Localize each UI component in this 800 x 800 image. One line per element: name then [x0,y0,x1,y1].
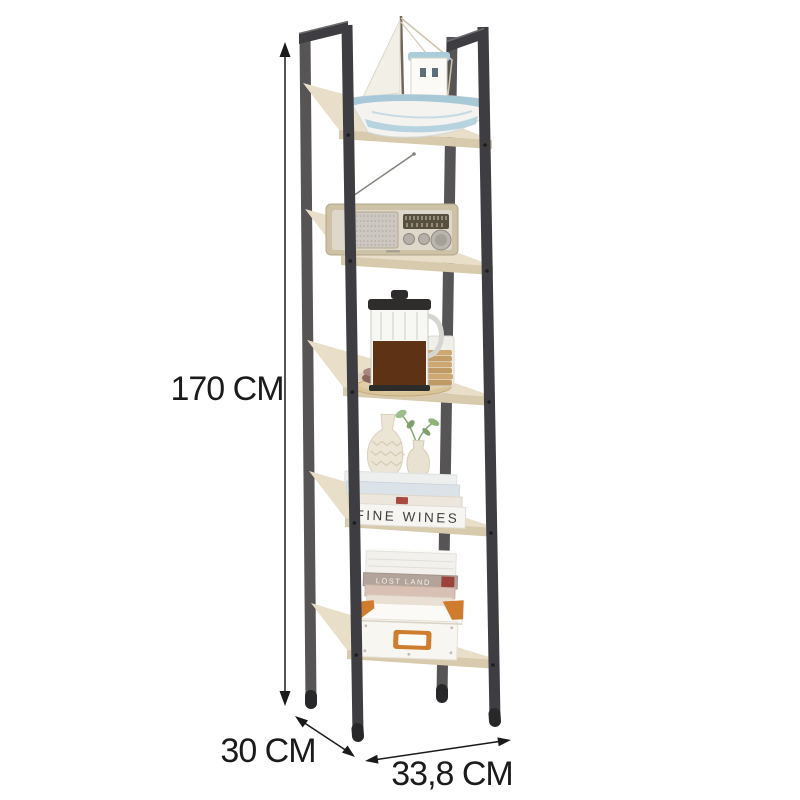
front-right-leg [483,27,495,720]
radio-antenna [350,154,414,198]
radio-antenna-tip [412,152,416,156]
depth-dimension: 30 CM [220,716,355,770]
width-dimension: 33,8 CM [365,737,513,793]
book-red-label [396,497,408,504]
radio-speaker-grille [354,212,398,248]
radio-brand-mark [386,250,400,253]
radio-knob-middle [419,234,430,245]
product-image: FINE WINES LOST LAND [0,0,800,800]
boat-mast [401,16,403,100]
boat-sail [363,20,400,97]
height-arrowhead-bottom [280,691,291,706]
height-dimension-label: 170 CM [170,370,283,408]
radio-knob-large-inner [435,234,447,246]
front-left-foot-cap [358,729,359,736]
book-stack-shelf4: FINE WINES [343,471,467,528]
storage-box [351,596,464,660]
boat-cabin [411,58,447,100]
books-and-storage-box: LOST LAND [351,547,466,660]
french-press-coffee-set [353,290,454,396]
radio-knob-left [404,234,415,245]
height-dimension: 170 CM [170,42,290,706]
depth-arrowhead-left [295,716,308,728]
cabin-window-left [420,68,426,77]
press-plunger-knob [391,290,408,299]
depth-arrowhead-right [342,746,355,758]
rear-left-leg [305,36,311,702]
width-arrowhead-left [365,755,379,764]
front-right-foot-cap [495,714,496,721]
dimension-annotations: 170 CM 30 CM 33,8 CM [170,42,512,793]
depth-dimension-label: 30 CM [220,732,315,770]
small-vase [407,440,431,478]
box-label-card [398,634,426,646]
height-arrowhead-top [280,42,291,57]
tall-vase [367,414,404,477]
top-rail-left [299,21,348,44]
cabin-window-right [432,68,438,77]
press-coffee [373,341,426,385]
width-dimension-label: 33,8 CM [391,755,513,793]
book-stack-shelf5: LOST LAND [363,548,459,608]
press-base [369,385,430,391]
book-lost-land-label [441,576,454,587]
width-arrowhead-right [497,737,511,746]
press-lid [368,299,431,310]
ladder-shelf-diagram: FINE WINES LOST LAND [0,0,800,800]
